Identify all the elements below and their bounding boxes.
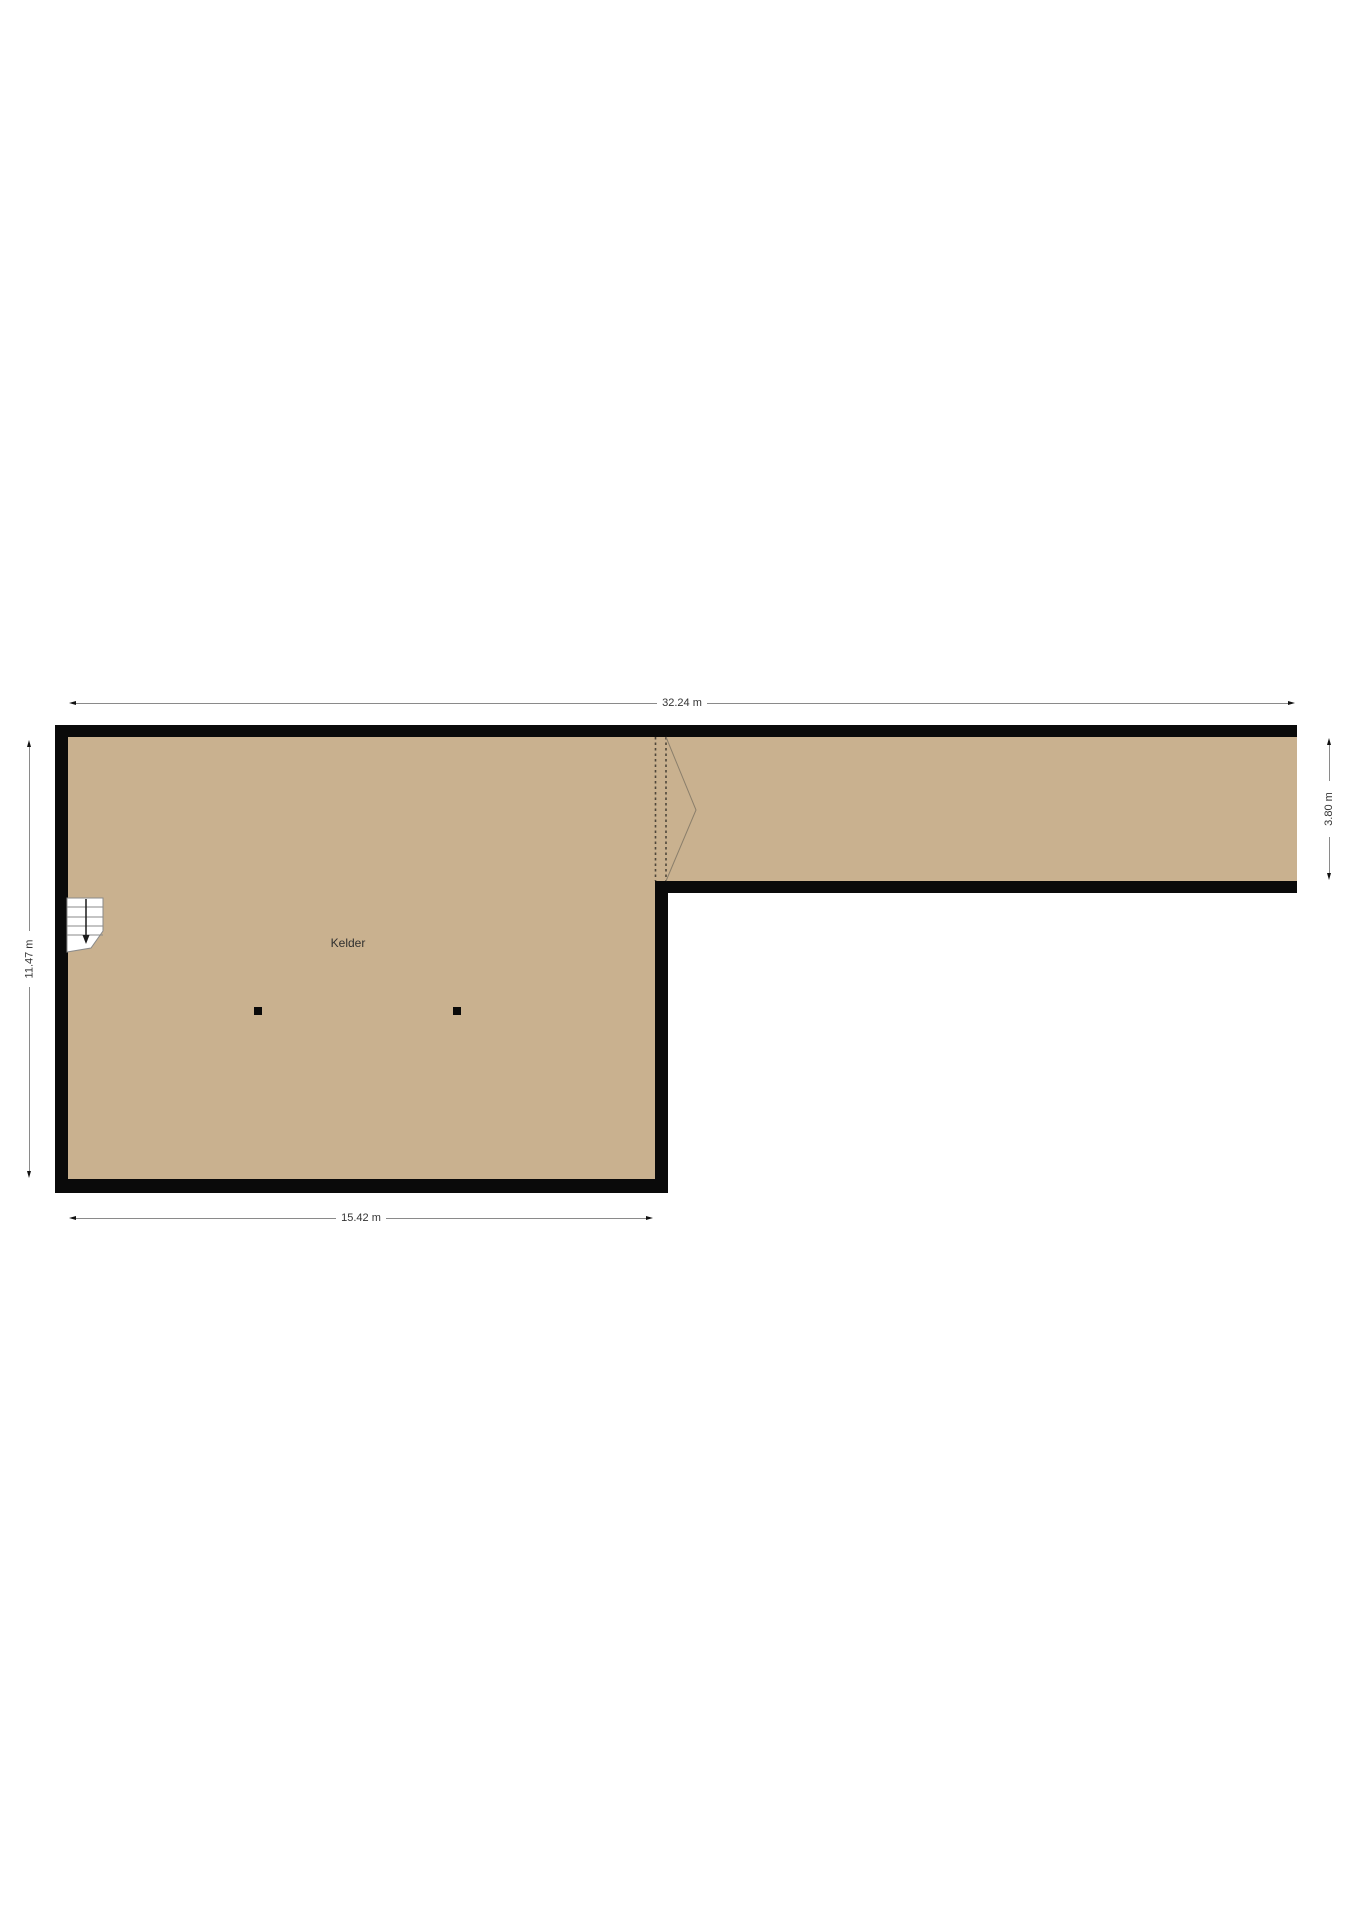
wall-corridor-bottom <box>655 881 1297 893</box>
dim-line <box>1329 837 1330 873</box>
dim-line <box>29 747 30 931</box>
dim-arrow-up-icon <box>27 740 31 747</box>
dim-line <box>76 1218 336 1219</box>
dimension-label-right: 3.80 m <box>1323 792 1335 826</box>
dim-line <box>1329 745 1330 781</box>
column-marker-2 <box>453 1007 461 1015</box>
column-marker-1 <box>254 1007 262 1015</box>
room-label: Kelder <box>298 936 398 950</box>
wall-kelder-right <box>655 881 668 1193</box>
kelder-room-floor <box>68 737 655 1179</box>
dimension-left: 11.47 m <box>22 740 36 1178</box>
dimension-right: 3.80 m <box>1322 738 1336 880</box>
dim-arrow-left-icon <box>69 701 76 705</box>
dim-line <box>29 987 30 1171</box>
dim-arrow-left-icon <box>69 1216 76 1220</box>
dim-line <box>707 703 1288 704</box>
dimension-label-bottom: 15.42 m <box>336 1212 386 1224</box>
dim-line <box>76 703 657 704</box>
wall-kelder-bottom <box>55 1179 668 1193</box>
wall-left <box>55 725 68 1193</box>
slope-chevron-icon <box>666 737 696 881</box>
dim-line <box>386 1218 646 1219</box>
dimension-label-top: 32.24 m <box>657 697 707 709</box>
dim-arrow-down-icon <box>1327 873 1331 880</box>
corridor-floor <box>655 737 1297 881</box>
dim-arrow-right-icon <box>1288 701 1295 705</box>
floor-plan-canvas: Kelder 32.24 m 15.42 m 11.47 m 3.80 m <box>0 0 1358 1920</box>
dim-arrow-right-icon <box>646 1216 653 1220</box>
opening-dashed-with-chevron <box>650 735 702 883</box>
dim-arrow-up-icon <box>1327 738 1331 745</box>
dimension-bottom: 15.42 m <box>69 1212 653 1224</box>
staircase <box>66 896 106 956</box>
dim-arrow-down-icon <box>27 1171 31 1178</box>
dimension-top: 32.24 m <box>69 697 1295 709</box>
dimension-label-left: 11.47 m <box>23 940 35 979</box>
